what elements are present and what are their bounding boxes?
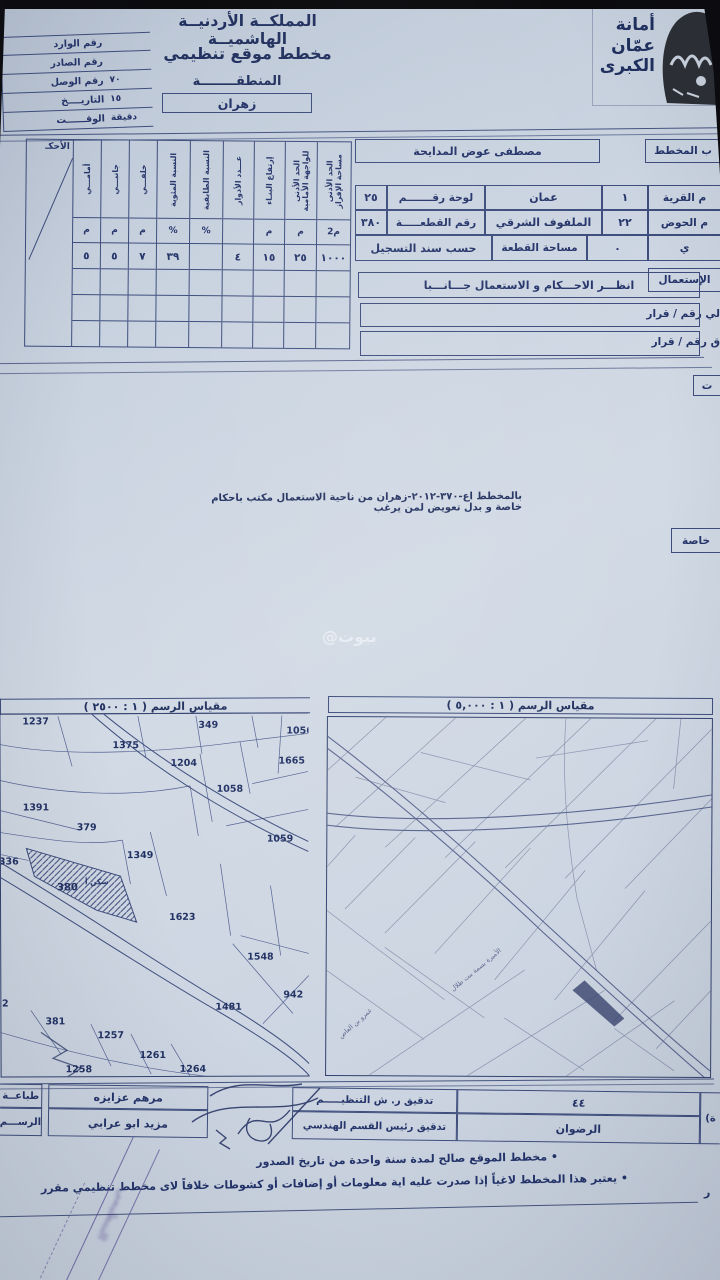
parcel-number: 1056 — [286, 725, 309, 736]
sheet-no-cell: ٢٥ — [355, 185, 387, 210]
reg-header: إرتفاع البنـاء — [265, 144, 275, 216]
reg-header: جانبـــي — [110, 143, 120, 215]
reg-value: ٧ — [129, 243, 156, 269]
cut-label-cell: (ة — [700, 1092, 720, 1144]
print-label-cell: طباعــة — [0, 1084, 42, 1109]
reg-col-subdivision-area: الحد الأدنى مساحة الإفراز م2 ١٠٠٠ — [315, 142, 351, 348]
reg-col-percentage: النسبة المئوية % ٣٩ — [155, 141, 190, 347]
document-title: مخطط موقع تنظيمي — [145, 44, 350, 63]
basin-name-cell: الملفوف الشرقي — [485, 210, 602, 235]
parcel-number: 1375 — [112, 740, 138, 751]
reg-header: النسبة الطابقية — [202, 144, 212, 216]
printed-by-cell: مرهم عزايزه — [48, 1084, 208, 1110]
ref-label: رقم الوصل — [1, 71, 108, 93]
reg-header: أمامـــي — [82, 143, 92, 215]
reg-value: ٢٥ — [285, 245, 316, 271]
ref-label: الوقــــــت — [3, 109, 110, 131]
parcel-number: 1623 — [169, 912, 195, 923]
parcel-number: 1058 — [217, 784, 243, 795]
parcel-number: 1258 — [66, 1064, 92, 1075]
reg-header: الحد الأدنى للواجهة الأمامية — [291, 144, 310, 216]
drawn-by-cell: مزيد ابو عرابي — [48, 1108, 208, 1138]
reg-header: الحد الأدنى مساحة الإفراز — [324, 145, 343, 217]
writing-line-2 — [0, 367, 712, 374]
parcel-number: 1481 — [215, 1002, 241, 1013]
basin-no-cell: ٢٢ — [602, 210, 648, 235]
reg-col-building-height: إرتفاع البنـاء م ١٥ — [252, 142, 285, 348]
parcel-number: 1349 — [127, 850, 153, 861]
area-label-cell: مساحة القطعة — [492, 235, 587, 261]
left-map-parcel-labels: 1237349105613751204166510581391379105913… — [0, 713, 309, 1076]
reg-value: ١٠٠٠ — [317, 245, 350, 271]
applicant-label-cell: ب المخطط — [645, 139, 720, 163]
gam-logo-box: أمانة عمّان الكبرى — [592, 8, 720, 106]
parcel-number: 1665 — [279, 755, 305, 766]
parcel-number: 1204 — [171, 758, 197, 769]
ref-value — [107, 51, 152, 71]
scanned-site-plan-document: أمانة عمّان الكبرى المملكــة الأردنيــة … — [0, 0, 720, 1280]
reg-value: ١٥ — [254, 245, 284, 271]
footer-edge-char: ر — [704, 1186, 710, 1199]
reg-unit: م — [285, 220, 316, 245]
regulations-table: الحد الأدنى مساحة الإفراز م2 ١٠٠٠ الحد ا… — [24, 139, 352, 350]
gam-logo-text: أمانة عمّان الكبرى — [593, 9, 657, 105]
ref-value: ٧٠ — [107, 70, 152, 90]
reg-col-floor-count: عـــدد الأدوار ٤ — [221, 141, 254, 347]
usage-value-cell: انظـــر الاحـــكام و الاستعمال جـــانـــ… — [358, 272, 700, 298]
reg-col-rear-setback: خلفـــي م ٧ — [127, 140, 157, 346]
special-tab-box: خاصة — [671, 528, 720, 553]
row3-no-cell: ٠ — [587, 235, 648, 261]
reg-header: خلفـــي — [138, 143, 148, 215]
logo-line-1: أمانة — [593, 15, 655, 36]
ref-value: ١٥ — [108, 89, 153, 109]
row3-label-cell: ي — [648, 235, 720, 261]
notes-tab-box: ت — [693, 375, 720, 396]
reg-unit: % — [190, 219, 222, 244]
right-map-streets — [325, 717, 712, 1078]
footer-note-2: • يعتبر هذا المخطط لاغياً إذا صدرت عليه … — [2, 1172, 628, 1196]
area-value-cell: حسب سند التسجيل — [355, 235, 492, 261]
bayut-watermark: بيوت@ — [322, 627, 377, 646]
parcel-number: 379 — [77, 822, 97, 833]
applicant-value-cell: مصطفى عوض المدايحة — [355, 139, 600, 163]
region-value: زهران — [218, 96, 257, 111]
reg-unit: م — [73, 218, 100, 243]
village-label-cell: م القرية — [648, 185, 720, 210]
region-value-box: زهران — [162, 93, 312, 113]
parcel-number: 942 — [283, 989, 303, 1000]
logo-line-2: عمّان — [593, 36, 655, 57]
provisions-diagonal-line — [26, 140, 73, 346]
photo-edge-top — [0, 0, 720, 9]
audit-eng-cell: تدقيق رئيس القسم الهندسي — [292, 1111, 457, 1141]
reg-value: ٥ — [101, 243, 128, 269]
subject-parcel-zone-label: سكن أ — [85, 877, 109, 886]
district-name-cell: الرضوان — [457, 1113, 700, 1144]
left-map: 1237349105613751204166510581391379105913… — [0, 712, 310, 1077]
village-no-cell: ١ — [602, 185, 648, 210]
region-label: المنطقــــــــة — [162, 74, 312, 89]
village-name-cell: عمان — [485, 185, 602, 210]
footer-note-1: • مخطط الموقع صالح لمدة سنة واحدة من تار… — [2, 1150, 558, 1173]
parcel-number: 1261 — [140, 1050, 166, 1061]
table-row: دقيقة الوقــــــت — [3, 108, 154, 132]
reg-col-front-setback: أمامـــي م ٥ — [71, 140, 101, 346]
kingdom-title: المملكــة الأردنيــة الهاشميــة — [145, 12, 350, 48]
logo-line-3: الكبرى — [593, 56, 655, 77]
right-map: الأميرة بسمة بنت طلال عمرو بن العاص — [325, 716, 713, 1078]
draw-label-cell: الرســـم — [0, 1108, 42, 1137]
reg-col-floor-ratio: النسبة الطابقية % — [188, 141, 223, 347]
district-no-cell: ٤٤ — [457, 1089, 700, 1116]
ref-value: دقيقة — [109, 108, 154, 128]
decision1-empty-box — [360, 303, 700, 327]
parcel-number: 349 — [198, 720, 218, 731]
parcel-number: 1257 — [97, 1030, 123, 1041]
ref-label: التاريــــخ — [2, 90, 109, 112]
reg-col-min-frontage: الحد الأدنى للواجهة الأمامية م ٢٥ — [283, 142, 317, 348]
parcel-no-cell: ٣٨٠ — [355, 210, 387, 235]
reg-unit: م — [254, 220, 284, 245]
parcel-number: 1391 — [23, 802, 49, 813]
parcel-number: 1237 — [22, 716, 48, 727]
parcel-number: 32 — [0, 999, 9, 1010]
reg-header: عـــدد الأدوار — [234, 144, 244, 216]
special-note-text: بالمخطط اع-٣٧٠-٢٠١٢-زهران من ناحية الاست… — [200, 491, 522, 515]
basin-label-cell: م الحوض — [648, 210, 720, 235]
writing-line-1 — [0, 357, 704, 364]
parcel-label-cell: رقم القطعـــــة — [387, 210, 485, 235]
sheet-label-cell: لوحة رقـــــــم — [387, 185, 485, 210]
reg-col-side-setback: جانبـــي م ٥ — [99, 140, 129, 346]
reg-unit: م2 — [317, 220, 350, 245]
reg-value: ٣٩ — [157, 244, 189, 270]
reg-unit — [223, 219, 253, 244]
reg-unit: م — [101, 218, 128, 243]
parcel-number: 336 — [0, 856, 19, 867]
parcel-number: 1264 — [180, 1064, 206, 1075]
reg-unit: م — [129, 218, 156, 243]
parcel-number: 381 — [45, 1016, 65, 1027]
parcel-number: 1548 — [247, 952, 273, 963]
parcel-number: 1059 — [267, 834, 293, 845]
reg-unit: % — [157, 219, 189, 244]
reference-numbers-table: رقم الوارد رقم الصادر ٧٠ رقم الوصل ١٥ ال… — [0, 32, 153, 132]
approval-table: طباعــة الرســـم مرهم عزايزه مزيد ابو عر… — [0, 1082, 720, 1157]
reg-value: ٥ — [73, 243, 100, 269]
audit-org-cell: تدقيق ر. ش التنظيـــــم — [292, 1087, 457, 1113]
reg-col-provisions: الأحكـ — [26, 140, 73, 346]
reg-value: ٤ — [223, 244, 253, 270]
reg-header: النسبة المئوية — [169, 143, 179, 215]
reg-value — [190, 244, 222, 270]
right-map-scale-bar: مقياس الرسم ( ١ : ٥,٠٠٠ ) — [328, 696, 713, 715]
ref-value — [106, 33, 151, 52]
decision2-empty-box — [360, 331, 700, 356]
ref-label: رقم الصادر — [1, 52, 108, 74]
subject-parcel-number: 380 — [57, 882, 78, 893]
